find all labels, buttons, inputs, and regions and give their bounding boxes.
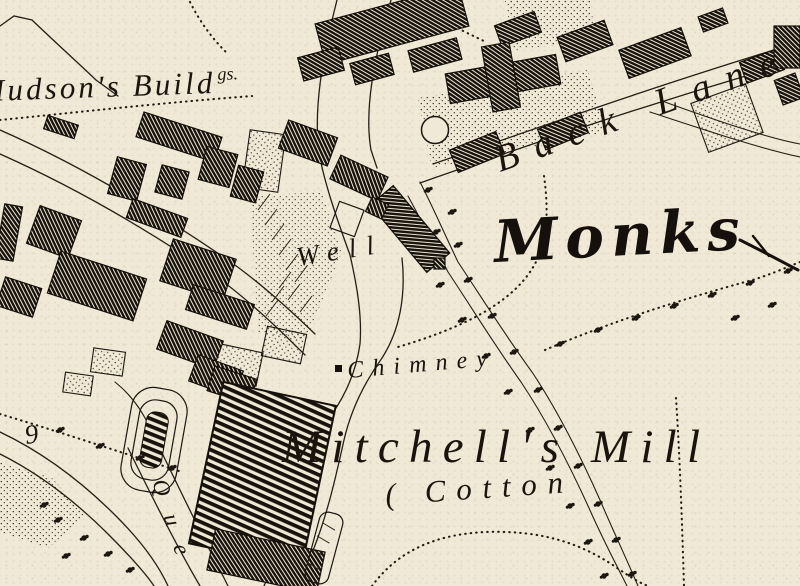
map-canvas: Hudson's Build gs. Back Lane Monks Well … bbox=[0, 0, 800, 586]
label-chimney: Chimney bbox=[346, 346, 488, 384]
label-mitchells-mill: Mitchell's Mill bbox=[281, 421, 702, 473]
mill-pond bbox=[117, 384, 190, 496]
label-hudsons-buildings: Hudson's Build bbox=[0, 65, 214, 108]
chimney-symbol bbox=[335, 365, 342, 372]
mill-complex bbox=[189, 382, 345, 586]
label-que-street: Que bbox=[147, 476, 195, 558]
label-hudsons-buildings-superscript: gs. bbox=[217, 63, 238, 84]
churchyard-circle bbox=[422, 117, 449, 144]
label-monks: Monks bbox=[490, 195, 745, 276]
label-parcel-number: 9 bbox=[23, 418, 41, 450]
map-stage: Hudson's Build gs. Back Lane Monks Well … bbox=[0, 0, 800, 586]
monks-flourish bbox=[740, 236, 798, 270]
